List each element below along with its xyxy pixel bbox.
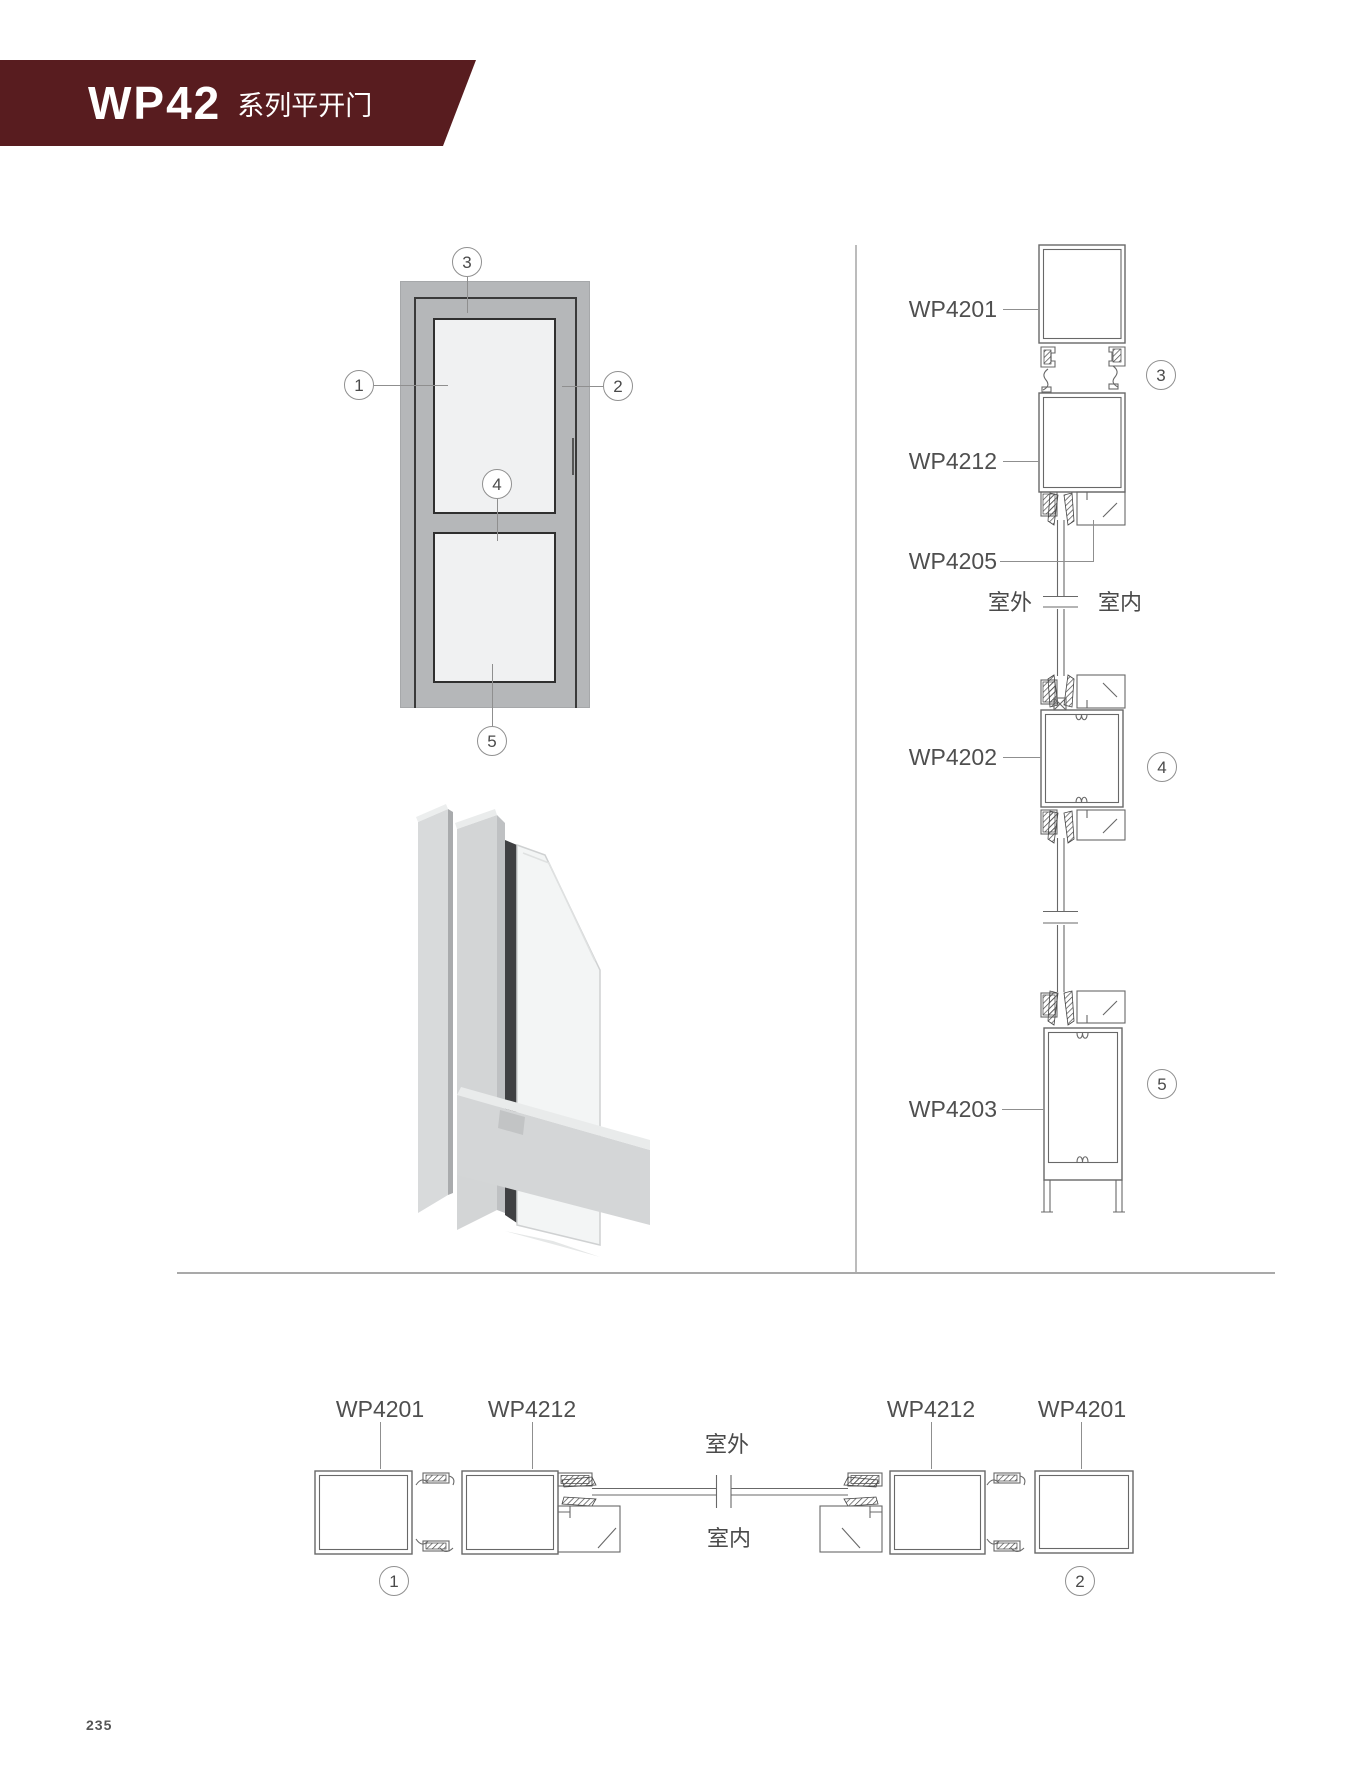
- wp4202-section: [1041, 710, 1123, 807]
- frame-sash-joint: [1041, 347, 1125, 392]
- content-divider: [177, 1272, 1275, 1274]
- leader-callout-4: [497, 499, 498, 541]
- callout-4: 4: [482, 469, 512, 499]
- glass-vertical: [1043, 520, 1078, 676]
- label-wp4212-vertical: WP4212: [897, 448, 997, 474]
- glazing-zone-bottom: [1041, 991, 1125, 1025]
- wp4203-section: [1041, 1028, 1125, 1212]
- callout-section-3: 3: [1146, 360, 1176, 390]
- wp4201-right-section: [1035, 1471, 1133, 1553]
- series-header-banner: WP42 系列平开门: [0, 60, 480, 146]
- leader-wp4203: [1002, 1109, 1044, 1110]
- callout-5: 5: [477, 726, 507, 756]
- glass-vertical-2: [1043, 838, 1078, 992]
- catalog-page: WP42 系列平开门 1 2 3 4 5: [0, 0, 1359, 1770]
- page-number: 235: [86, 1717, 112, 1733]
- leader-callout-5: [492, 664, 493, 726]
- leader-callout-2: [562, 386, 603, 387]
- callout-1: 1: [344, 370, 374, 400]
- label-inside-vertical: 室内: [1090, 591, 1150, 615]
- joint-left: [416, 1473, 454, 1552]
- glazing-zone-top: [1041, 492, 1125, 525]
- door-frame-line-top: [414, 297, 577, 299]
- callout-plan-1: 1: [379, 1566, 409, 1596]
- callout-section-5: 5: [1147, 1069, 1177, 1099]
- wp4201-left-section: [315, 1471, 412, 1554]
- wp4212-section: [1039, 393, 1125, 492]
- label-wp4212-left: WP4212: [462, 1396, 602, 1422]
- wp4212-right-section: [890, 1471, 985, 1554]
- label-wp4201-left: WP4201: [310, 1396, 450, 1422]
- door-glass-panel-lower: [433, 532, 556, 683]
- horizontal-section-drawing: [300, 1460, 1160, 1590]
- label-wp4205-vertical: WP4205: [897, 548, 997, 574]
- label-outside-horizontal: 室外: [697, 1433, 757, 1457]
- leader-wp4212: [1003, 461, 1039, 462]
- wp4201-section: [1039, 245, 1125, 343]
- label-wp4201-vertical: WP4201: [897, 296, 997, 322]
- label-wp4201-right: WP4201: [1012, 1396, 1152, 1422]
- glazing-zone-mid-upper: [1041, 675, 1125, 710]
- door-frame-line-right: [575, 297, 577, 708]
- leader-wp4212-right: [931, 1422, 932, 1469]
- joint-right: [987, 1473, 1025, 1552]
- leader-wp4201-left: [380, 1422, 381, 1469]
- leader-wp4201-right: [1081, 1422, 1082, 1469]
- callout-3: 3: [452, 247, 482, 277]
- label-inside-horizontal: 室内: [699, 1527, 759, 1551]
- label-wp4212-right: WP4212: [861, 1396, 1001, 1422]
- glazing-left: [558, 1473, 620, 1552]
- leader-wp4202: [1003, 757, 1041, 758]
- series-code: WP42: [88, 80, 221, 126]
- leader-wp4205-v: [1093, 520, 1094, 562]
- callout-plan-2: 2: [1065, 1566, 1095, 1596]
- profile-3d-render: [405, 795, 665, 1265]
- series-name: 系列平开门: [237, 87, 372, 120]
- leader-wp4201: [1003, 309, 1039, 310]
- leader-callout-1: [374, 385, 448, 386]
- callout-section-4: 4: [1147, 752, 1177, 782]
- glazing-zone-mid-lower: [1041, 810, 1125, 843]
- callout-2: 2: [603, 371, 633, 401]
- glass-horizontal: [592, 1475, 848, 1508]
- leader-callout-3: [467, 277, 468, 313]
- label-wp4203-vertical: WP4203: [897, 1096, 997, 1122]
- wp4212-left-section: [462, 1471, 558, 1554]
- label-outside-vertical: 室外: [980, 591, 1040, 615]
- door-frame-line-left: [414, 297, 416, 708]
- door-handle: [572, 438, 574, 475]
- glazing-right: [820, 1473, 882, 1552]
- label-wp4202-vertical: WP4202: [897, 744, 997, 770]
- leader-wp4212-left: [532, 1422, 533, 1469]
- leader-wp4205-h: [1000, 561, 1094, 562]
